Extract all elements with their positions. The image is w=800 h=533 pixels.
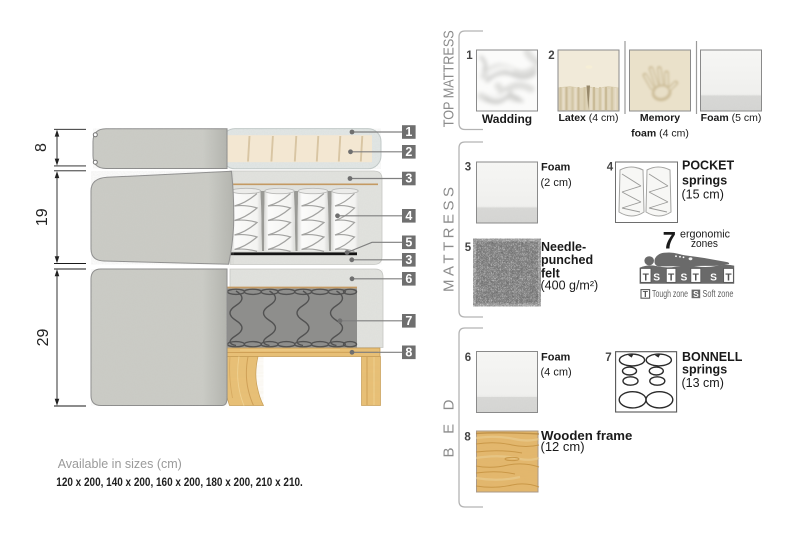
svg-text:Available in sizes (cm): Available in sizes (cm) xyxy=(58,457,182,471)
svg-text:8: 8 xyxy=(33,143,50,152)
svg-text:7: 7 xyxy=(663,228,676,255)
svg-text:(13 cm): (13 cm) xyxy=(682,376,724,390)
svg-text:Needle-: Needle- xyxy=(541,240,586,254)
svg-text:zones: zones xyxy=(691,238,718,250)
svg-text:T: T xyxy=(668,273,675,284)
svg-text:1: 1 xyxy=(466,50,473,62)
svg-text:TOP MATTRESS: TOP MATTRESS xyxy=(441,30,458,127)
svg-text:BED: BED xyxy=(441,399,458,457)
svg-text:(4 cm): (4 cm) xyxy=(541,366,572,378)
svg-text:6: 6 xyxy=(465,352,471,364)
svg-text:5: 5 xyxy=(465,242,472,254)
svg-text:S: S xyxy=(693,289,699,299)
svg-text:S: S xyxy=(681,273,688,284)
svg-text:6: 6 xyxy=(405,272,412,286)
svg-text:T: T xyxy=(643,273,650,284)
svg-text:S: S xyxy=(653,273,660,284)
svg-text:(2 cm): (2 cm) xyxy=(541,177,572,189)
svg-text:T: T xyxy=(725,273,732,284)
svg-text:3: 3 xyxy=(405,172,412,186)
svg-text:Foam: Foam xyxy=(541,161,571,173)
svg-text:5: 5 xyxy=(405,235,412,249)
svg-text:foam (4 cm): foam (4 cm) xyxy=(631,128,689,140)
svg-text:2: 2 xyxy=(405,145,412,159)
svg-text:Foam (5 cm): Foam (5 cm) xyxy=(701,112,762,124)
svg-text:8: 8 xyxy=(405,345,412,359)
svg-text:1: 1 xyxy=(405,125,412,139)
svg-text:springs: springs xyxy=(682,173,727,187)
svg-text:4: 4 xyxy=(607,162,614,174)
svg-text:T: T xyxy=(643,289,649,299)
svg-text:8: 8 xyxy=(464,432,471,444)
svg-text:2: 2 xyxy=(548,50,554,62)
svg-text:Wadding: Wadding xyxy=(482,112,532,126)
svg-text:POCKET: POCKET xyxy=(682,159,734,173)
svg-text:Soft zone: Soft zone xyxy=(703,289,734,300)
svg-text:7: 7 xyxy=(605,352,611,364)
svg-text:4: 4 xyxy=(405,209,412,223)
svg-text:Memory: Memory xyxy=(640,112,680,124)
svg-text:S: S xyxy=(710,273,717,284)
svg-text:springs: springs xyxy=(682,363,727,377)
svg-text:29: 29 xyxy=(35,329,52,347)
svg-text:3: 3 xyxy=(465,162,471,174)
svg-text:(15 cm): (15 cm) xyxy=(682,187,724,201)
svg-text:3: 3 xyxy=(405,253,412,267)
svg-text:(400 g/m²): (400 g/m²) xyxy=(541,279,599,293)
svg-text:Foam: Foam xyxy=(541,352,571,364)
svg-text:Latex (4 cm): Latex (4 cm) xyxy=(558,112,618,124)
svg-text:T: T xyxy=(693,273,700,284)
svg-text:120 x 200, 140 x 200, 160 x 20: 120 x 200, 140 x 200, 160 x 200, 180 x 2… xyxy=(56,475,302,489)
svg-text:7: 7 xyxy=(405,314,412,328)
svg-text:19: 19 xyxy=(34,208,51,226)
svg-text:punched: punched xyxy=(541,253,593,267)
svg-text:(12 cm): (12 cm) xyxy=(541,439,585,454)
svg-text:Tough zone: Tough zone xyxy=(652,289,688,300)
